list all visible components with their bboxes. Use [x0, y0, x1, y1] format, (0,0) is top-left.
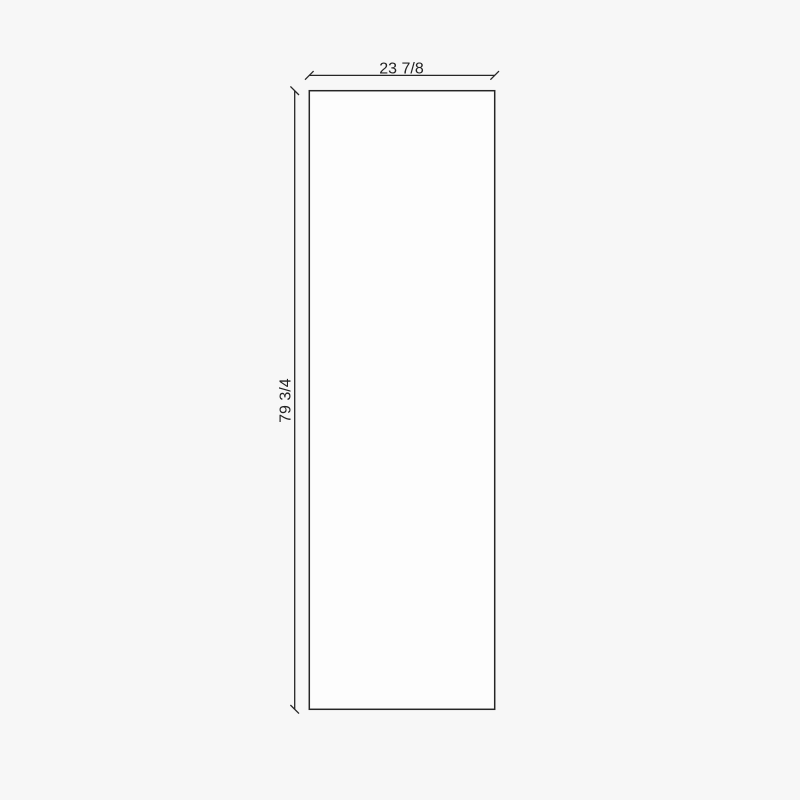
- svg-text:23 7/8: 23 7/8: [379, 60, 424, 77]
- svg-text:79 3/4: 79 3/4: [277, 378, 294, 423]
